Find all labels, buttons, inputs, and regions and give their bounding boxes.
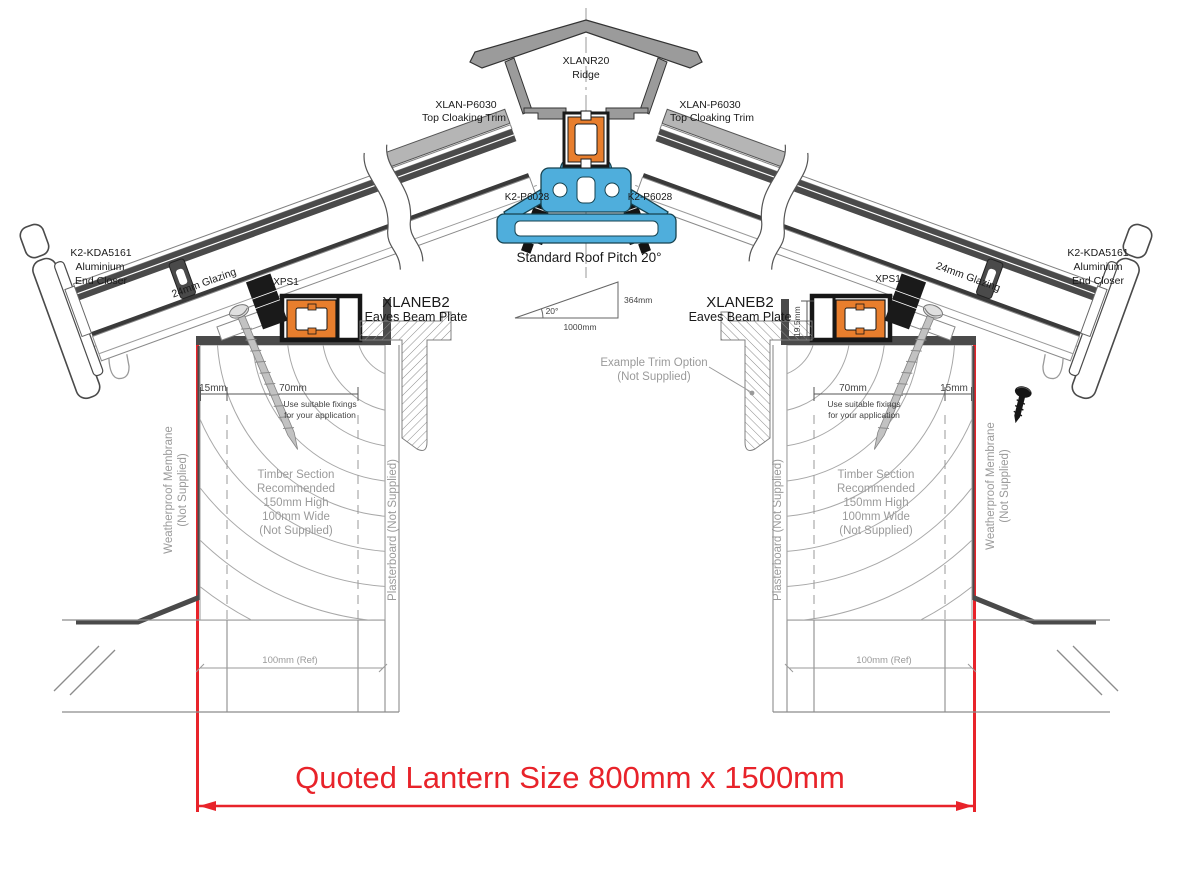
plasterboard-note-right: Plasterboard (Not Supplied) — [772, 459, 784, 601]
timber-note-1-right: Timber Section — [838, 469, 915, 481]
fixing-note-1-right: Use suitable fixings — [827, 399, 900, 409]
dim-15-left: 15mm — [199, 383, 227, 394]
quoted-size-dimension — [199, 801, 973, 811]
thermal-tab — [308, 304, 316, 310]
end-closer-line2-right: Aluminium — [1073, 261, 1122, 273]
wall-ref-dim-left: 100mm (Ref) — [262, 655, 317, 666]
end-closer-cap — [18, 222, 51, 260]
cloaking-name-left: Top Cloaking Trim — [422, 112, 506, 124]
beam-port-left — [553, 183, 567, 197]
timber-note-4-right: 100mm Wide — [842, 511, 910, 523]
leader-dot — [750, 391, 755, 396]
end-closer-line3-left: End Closer — [75, 275, 127, 287]
ridge-code-label: XLANR20 — [563, 55, 610, 67]
pitch-triangle-shape — [515, 282, 618, 318]
timber-note-1-left: Timber Section — [258, 469, 335, 481]
break-mark — [54, 646, 99, 691]
ridge-side-plate — [505, 58, 532, 114]
eaves-beam-name-right: Eaves Beam Plate — [689, 310, 792, 324]
eaves-beam-code-left: XLANEB2 — [382, 294, 450, 311]
pitch-run-value: 1000mm — [563, 322, 596, 332]
eaves-beam-code-right: XLANEB2 — [706, 294, 774, 311]
trim-option-note-2: (Not Supplied) — [617, 371, 691, 383]
pitch-triangle — [515, 258, 618, 318]
end-closer-line2-left: Aluminium — [75, 261, 124, 273]
timber-note-5-right: (Not Supplied) — [839, 525, 913, 537]
xps1-label-left: XPS1 — [273, 277, 299, 288]
arrow-left — [199, 801, 216, 811]
loose-screw — [1007, 385, 1033, 425]
break-mark — [70, 650, 115, 695]
beam-port-right — [605, 183, 619, 197]
beam-base-hollow — [515, 221, 658, 236]
dim-70-right: 70mm — [839, 383, 867, 394]
timber-note-5-left: (Not Supplied) — [259, 525, 333, 537]
timber-note-2-right: Recommended — [837, 483, 915, 495]
xps1-label-right: XPS1 — [875, 274, 901, 285]
ridge-step-plate — [524, 108, 566, 119]
profile-notch-bottom — [581, 159, 591, 168]
plasterboard-note-left: Plasterboard (Not Supplied) — [387, 459, 399, 601]
timber-note-2-left: Recommended — [257, 483, 335, 495]
timber-note-3-left: 150mm High — [263, 497, 328, 509]
profile-notch-top — [581, 111, 591, 120]
cloaking-code-right: XLAN-P6030 — [679, 99, 740, 111]
timber-note-3-right: 150mm High — [843, 497, 908, 509]
eaves-beam-name-left: Eaves Beam Plate — [365, 310, 468, 324]
lantern-section-drawing: XLANR20 Ridge XLAN-P6030 Top Cloaking Tr… — [0, 0, 1184, 872]
beam-centre-slot — [577, 177, 595, 203]
eaves-thermal-hollow — [296, 308, 327, 330]
end-closer-code-left: K2-KDA5161 — [70, 247, 131, 259]
thermal-tab — [308, 328, 316, 334]
pitch-angle-value: 20° — [546, 306, 559, 316]
ridge-name-label: Ridge — [572, 69, 600, 81]
cloaking-code-left: XLAN-P6030 — [435, 99, 496, 111]
membrane-note-2-left: (Not Supplied) — [177, 453, 189, 527]
quoted-size-label: Quoted Lantern Size 800mm x 1500mm — [295, 760, 845, 795]
ridge-thermal-profile — [564, 111, 608, 168]
fixing-note-2-right: for your application — [828, 410, 900, 420]
drawing-canvas: XLANR20 Ridge XLAN-P6030 Top Cloaking Tr… — [0, 0, 1184, 872]
cloaking-name-right: Top Cloaking Trim — [670, 112, 754, 124]
dim-70-left: 70mm — [279, 383, 307, 394]
membrane-note-1-left: Weatherproof Membrane — [163, 426, 175, 554]
fixing-note-2-left: for your application — [284, 410, 356, 420]
end-closer-code-right: K2-KDA5161 — [1067, 247, 1128, 259]
end-closer-line3-right: End Closer — [1072, 275, 1124, 287]
ridge-fixing-label-left: K2-P6028 — [505, 192, 550, 203]
trim-option-note-1: Example Trim Option — [600, 357, 707, 369]
eaves-beam-height-dim: 19.5mm — [792, 306, 802, 337]
membrane-note-1-right: Weatherproof Membrane — [985, 422, 997, 550]
membrane-note-2-right: (Not Supplied) — [999, 449, 1011, 523]
pitch-label: Standard Roof Pitch 20° — [517, 250, 662, 265]
timber-note-4-left: 100mm Wide — [262, 511, 330, 523]
ridge-fixing-label-right: K2-P6028 — [628, 192, 673, 203]
arrow-right — [956, 801, 973, 811]
wall-ref-dim-right: 100mm (Ref) — [856, 655, 911, 666]
wall-assembly-left — [54, 7, 727, 812]
dim-15-right: 15mm — [940, 383, 968, 394]
pitch-rise-value: 364mm — [624, 295, 652, 305]
profile-hollow — [575, 124, 597, 155]
pitch-angle-arc — [541, 309, 543, 318]
fixing-note-1-left: Use suitable fixings — [283, 399, 356, 409]
